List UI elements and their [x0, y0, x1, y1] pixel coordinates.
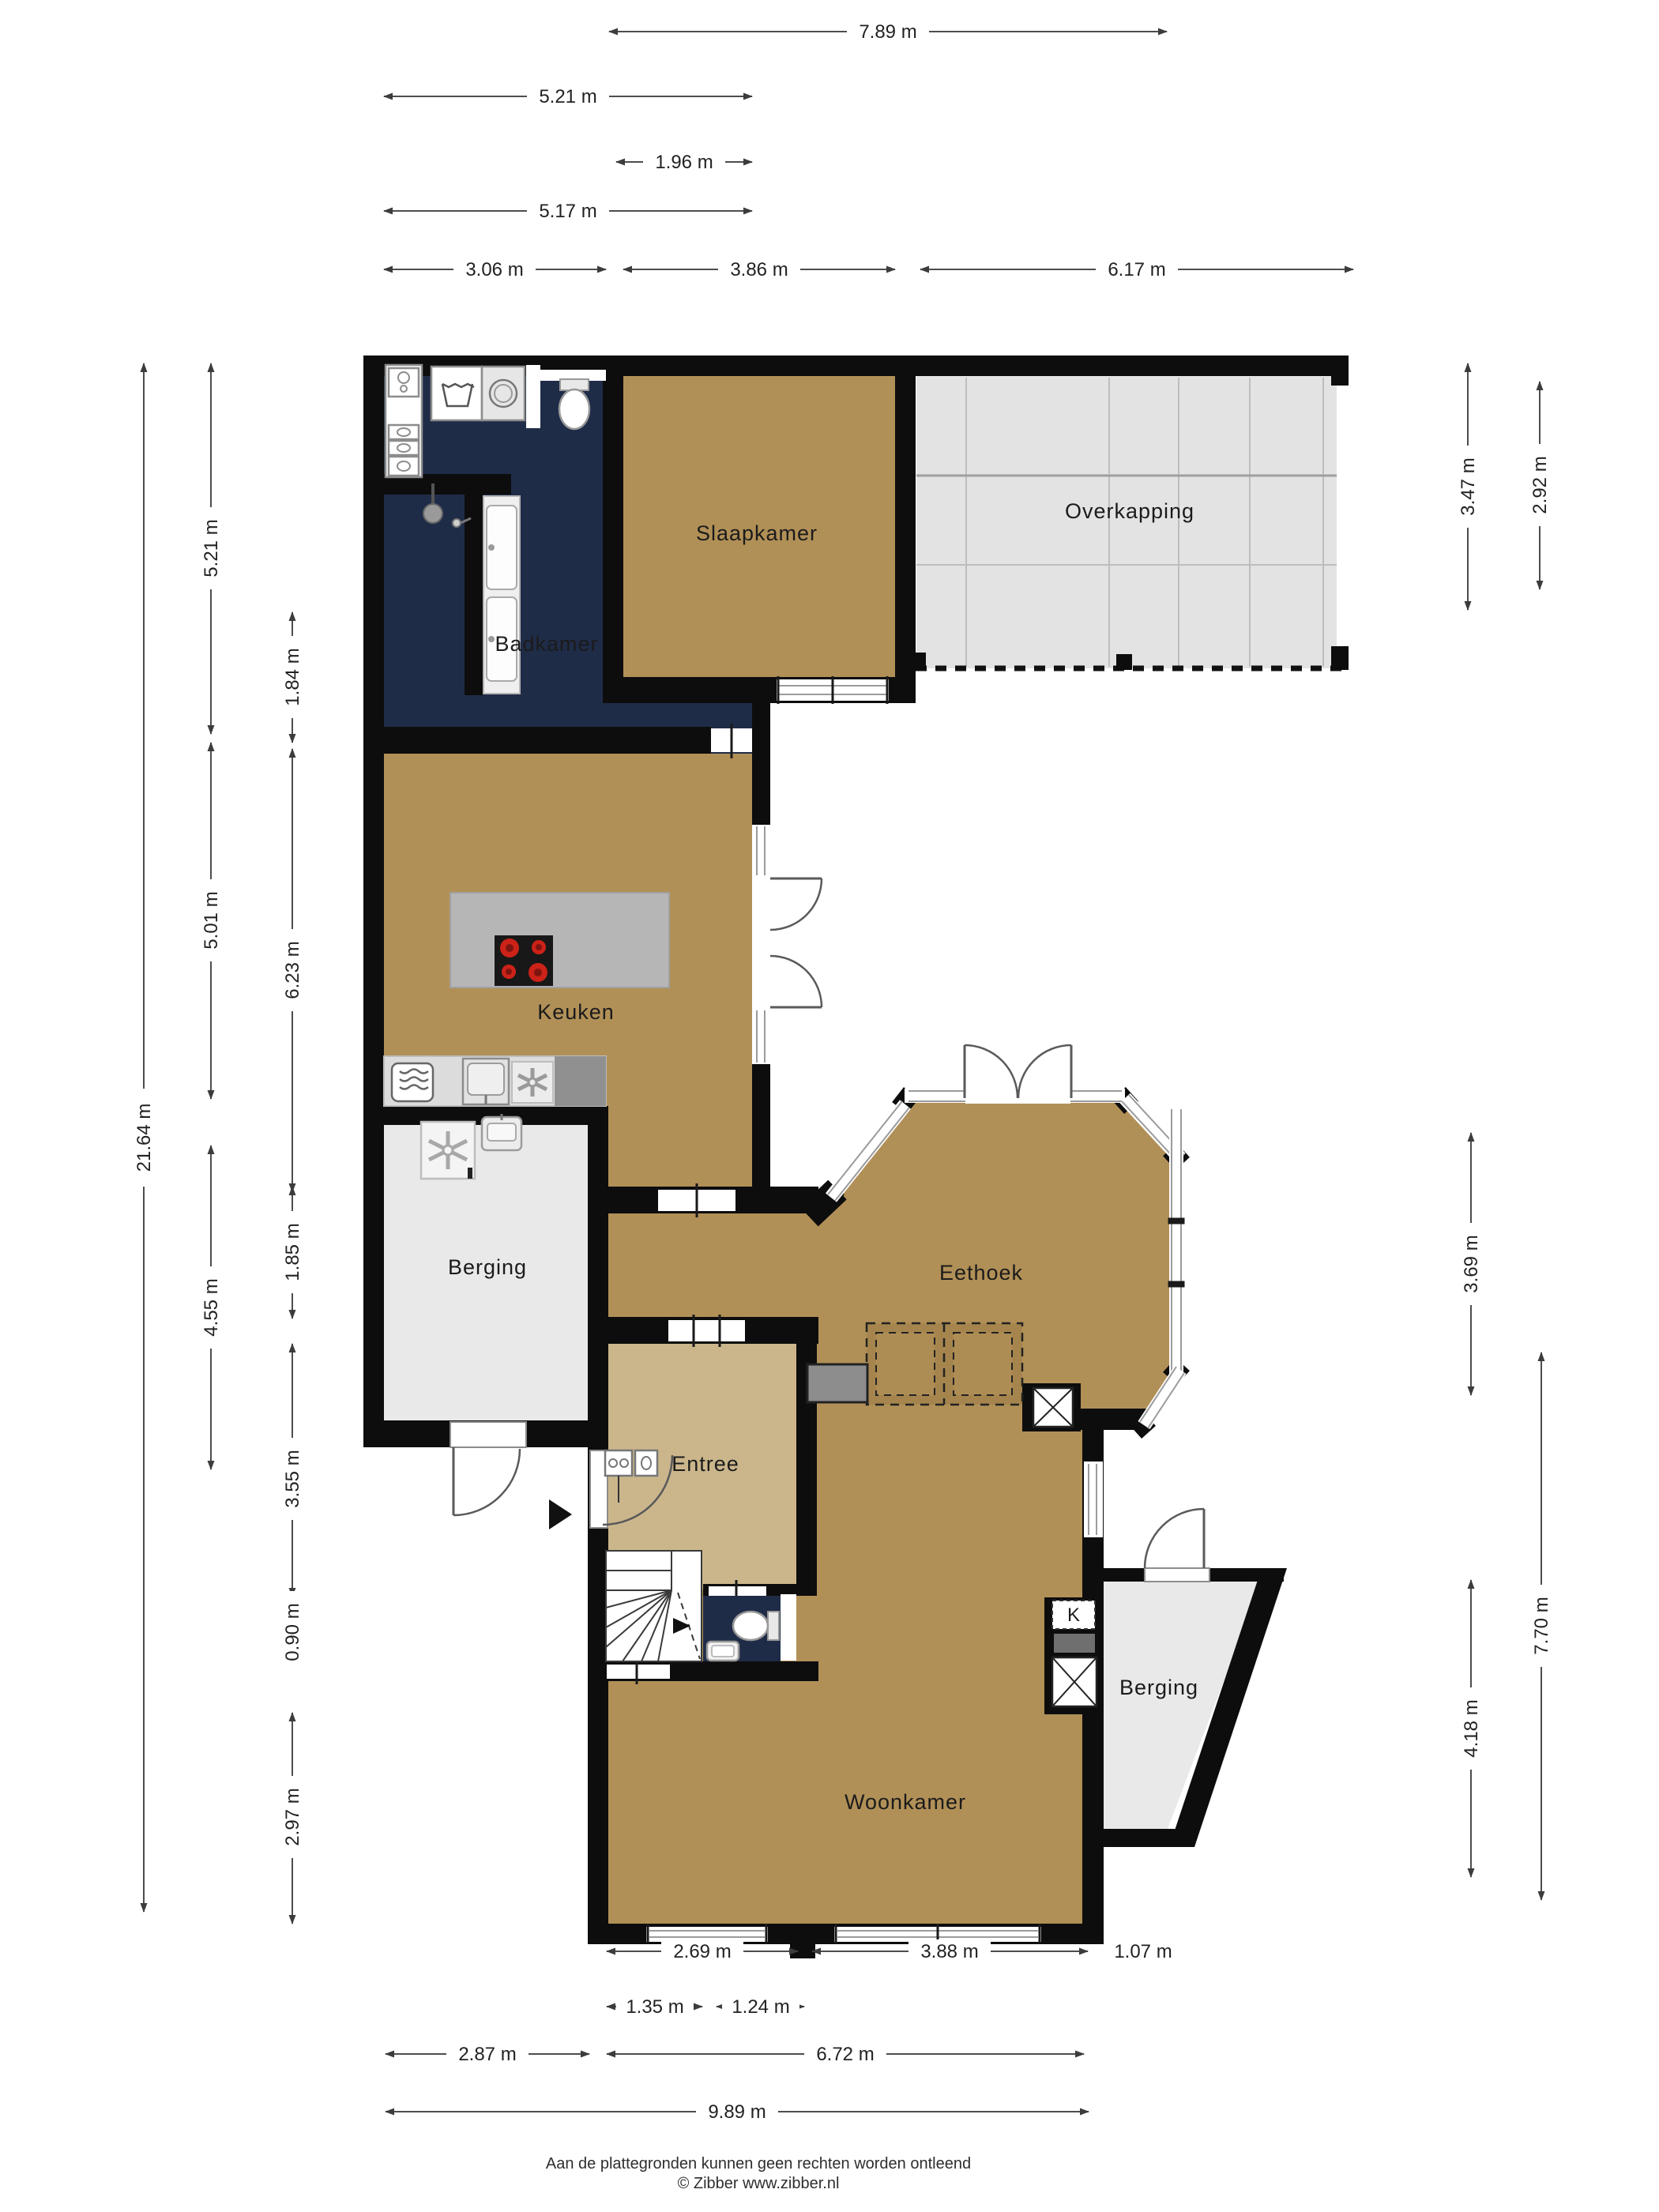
svg-text:2.97 m: 2.97 m — [282, 1788, 303, 1845]
svg-text:6.72 m: 6.72 m — [816, 2044, 874, 2065]
berging-left-door — [450, 1422, 526, 1515]
heatpump-icon — [421, 1122, 475, 1179]
svg-text:4.18 m: 4.18 m — [1461, 1699, 1482, 1757]
footer: Aan de plattegronden kunnen geen rechten… — [546, 2155, 971, 2192]
svg-text:1.35 m: 1.35 m — [626, 1996, 683, 2018]
label-keuken: Keuken — [537, 1000, 615, 1024]
kitchen-counter — [384, 1056, 606, 1106]
dryer-icon — [482, 367, 525, 420]
svg-text:1.85 m: 1.85 m — [282, 1223, 303, 1281]
dim-left-6: 1.85 m — [280, 1187, 304, 1319]
dim-top-3: 5.17 m — [384, 199, 752, 223]
label-berging-right: Berging — [1119, 1676, 1198, 1699]
dim-left-8: 0.90 m — [280, 1591, 304, 1673]
microwave-icon — [392, 1063, 433, 1101]
dim-bottom-4: 1.24 m — [717, 1995, 804, 2018]
toilet-icon — [733, 1612, 768, 1640]
dim-left-0: 21.64 m — [132, 363, 156, 1912]
dim-left-7: 3.55 m — [280, 1344, 304, 1597]
dim-left-5: 4.55 m — [199, 1145, 223, 1469]
dim-bottom-6: 6.72 m — [607, 2042, 1084, 2066]
label-badkamer: Badkamer — [495, 632, 598, 656]
window — [1084, 1461, 1103, 1537]
svg-text:5.01 m: 5.01 m — [201, 891, 222, 949]
wc-room — [703, 1596, 781, 1661]
dim-bottom-7: 9.89 m — [386, 2100, 1089, 2124]
stairs — [606, 1551, 702, 1661]
svg-text:3.69 m: 3.69 m — [1461, 1235, 1482, 1292]
dim-right-4: 4.18 m — [1459, 1580, 1483, 1877]
svg-text:2.92 m: 2.92 m — [1529, 456, 1551, 513]
svg-text:3.55 m: 3.55 m — [282, 1450, 303, 1507]
dim-right-1: 2.92 m — [1528, 382, 1552, 589]
dim-left-9: 2.97 m — [280, 1713, 304, 1924]
toilet-icon — [559, 379, 589, 429]
svg-text:1.24 m: 1.24 m — [732, 1996, 789, 2018]
svg-text:6.17 m: 6.17 m — [1108, 259, 1165, 280]
dim-right-3: 7.70 m — [1529, 1352, 1553, 1900]
canopy-post — [1116, 654, 1132, 670]
dim-left-2: 1.84 m — [280, 612, 304, 743]
berging-right-door — [1145, 1509, 1209, 1582]
floor-hatch-squares — [867, 1323, 1022, 1405]
svg-text:9.89 m: 9.89 m — [708, 2101, 766, 2123]
dim-left-1: 5.21 m — [199, 363, 223, 734]
label-eethoek: Eethoek — [939, 1261, 1023, 1285]
footer-copyright: © Zibber www.zibber.nl — [678, 2175, 840, 2192]
dim-bottom-3: 1.35 m — [607, 1995, 702, 2018]
svg-text:5.17 m: 5.17 m — [539, 201, 596, 222]
svg-text:7.89 m: 7.89 m — [859, 21, 916, 43]
dim-right-0: 3.47 m — [1456, 363, 1480, 610]
dim-top-2: 1.96 m — [616, 150, 752, 174]
french-doors-eethoek — [965, 1045, 1071, 1104]
svg-text:3.86 m: 3.86 m — [730, 259, 788, 280]
sideboard — [807, 1364, 867, 1402]
kitchen-island — [450, 893, 669, 987]
toilet-nook-wall — [526, 365, 540, 428]
chimney-icon — [1033, 1388, 1073, 1427]
dim-top-6: 6.17 m — [920, 258, 1353, 281]
meter-icon — [389, 425, 419, 439]
svg-text:6.23 m: 6.23 m — [282, 941, 303, 999]
window — [777, 676, 889, 704]
floors — [384, 365, 1343, 1924]
toilet-door — [781, 1594, 796, 1661]
svg-text:7.70 m: 7.70 m — [1531, 1597, 1552, 1654]
svg-text:2.69 m: 2.69 m — [673, 1941, 731, 1962]
utility-sink-icon — [482, 1114, 521, 1150]
svg-text:1.96 m: 1.96 m — [655, 152, 713, 173]
label-berging-left: Berging — [448, 1255, 527, 1279]
svg-text:1.07 m: 1.07 m — [1114, 1941, 1172, 1962]
svg-text:0.90 m: 0.90 m — [282, 1603, 303, 1661]
french-doors-keuken — [752, 877, 822, 1009]
dim-left-4: 6.23 m — [280, 749, 304, 1192]
floorplan-canvas: K Slaapkamer Overkapping Badkamer Keuken… — [0, 0, 1659, 2212]
meter-icon — [389, 441, 419, 455]
washing-machine-icon — [431, 367, 482, 420]
dim-top-4: 3.06 m — [384, 258, 606, 281]
meter-icon — [389, 457, 419, 476]
dim-right-2: 3.69 m — [1459, 1133, 1483, 1395]
svg-text:1.84 m: 1.84 m — [282, 648, 303, 705]
closet-k-label: K — [1067, 1604, 1080, 1626]
svg-text:3.06 m: 3.06 m — [465, 259, 523, 280]
label-overkapping: Overkapping — [1065, 499, 1194, 523]
svg-text:3.88 m: 3.88 m — [920, 1941, 978, 1962]
dim-bottom-5: 2.87 m — [386, 2042, 589, 2066]
svg-text:3.47 m: 3.47 m — [1458, 457, 1479, 515]
sink-icon — [463, 1059, 509, 1104]
label-entree: Entree — [671, 1452, 739, 1476]
canopy-post — [1331, 646, 1349, 670]
label-slaapkamer: Slaapkamer — [696, 521, 818, 545]
dim-top-0: 7.89 m — [609, 20, 1167, 43]
canopy-open-side — [1337, 385, 1345, 648]
footer-disclaimer: Aan de plattegronden kunnen geen rechten… — [546, 2155, 971, 2172]
svg-text:4.55 m: 4.55 m — [201, 1278, 222, 1336]
label-woonkamer: Woonkamer — [845, 1790, 966, 1814]
entrance-arrow-icon — [549, 1499, 572, 1529]
svg-text:5.21 m: 5.21 m — [539, 86, 596, 107]
dim-bottom-2: 1.07 m — [1104, 1939, 1182, 1963]
svg-text:2.87 m: 2.87 m — [458, 2044, 516, 2065]
svg-text:21.64 m: 21.64 m — [134, 1104, 155, 1172]
vanity-sinks-icon — [483, 496, 520, 694]
cooker-fan-icon — [512, 1062, 553, 1103]
dim-top-1: 5.21 m — [384, 85, 752, 108]
svg-text:5.21 m: 5.21 m — [201, 519, 222, 577]
dim-left-3: 5.01 m — [199, 743, 223, 1099]
dim-top-5: 3.86 m — [623, 258, 895, 281]
